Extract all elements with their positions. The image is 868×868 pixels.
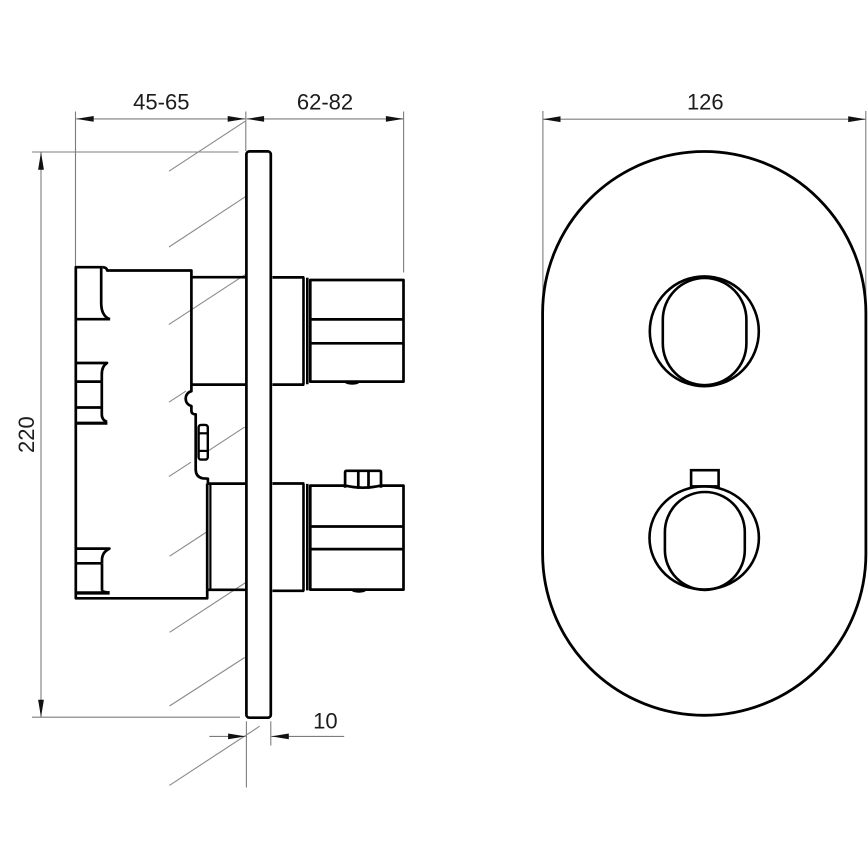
svg-text:220: 220 <box>14 416 39 453</box>
svg-text:10: 10 <box>313 709 337 734</box>
svg-text:45-65: 45-65 <box>133 90 189 115</box>
svg-text:62-82: 62-82 <box>297 90 353 115</box>
svg-text:126: 126 <box>687 90 724 115</box>
